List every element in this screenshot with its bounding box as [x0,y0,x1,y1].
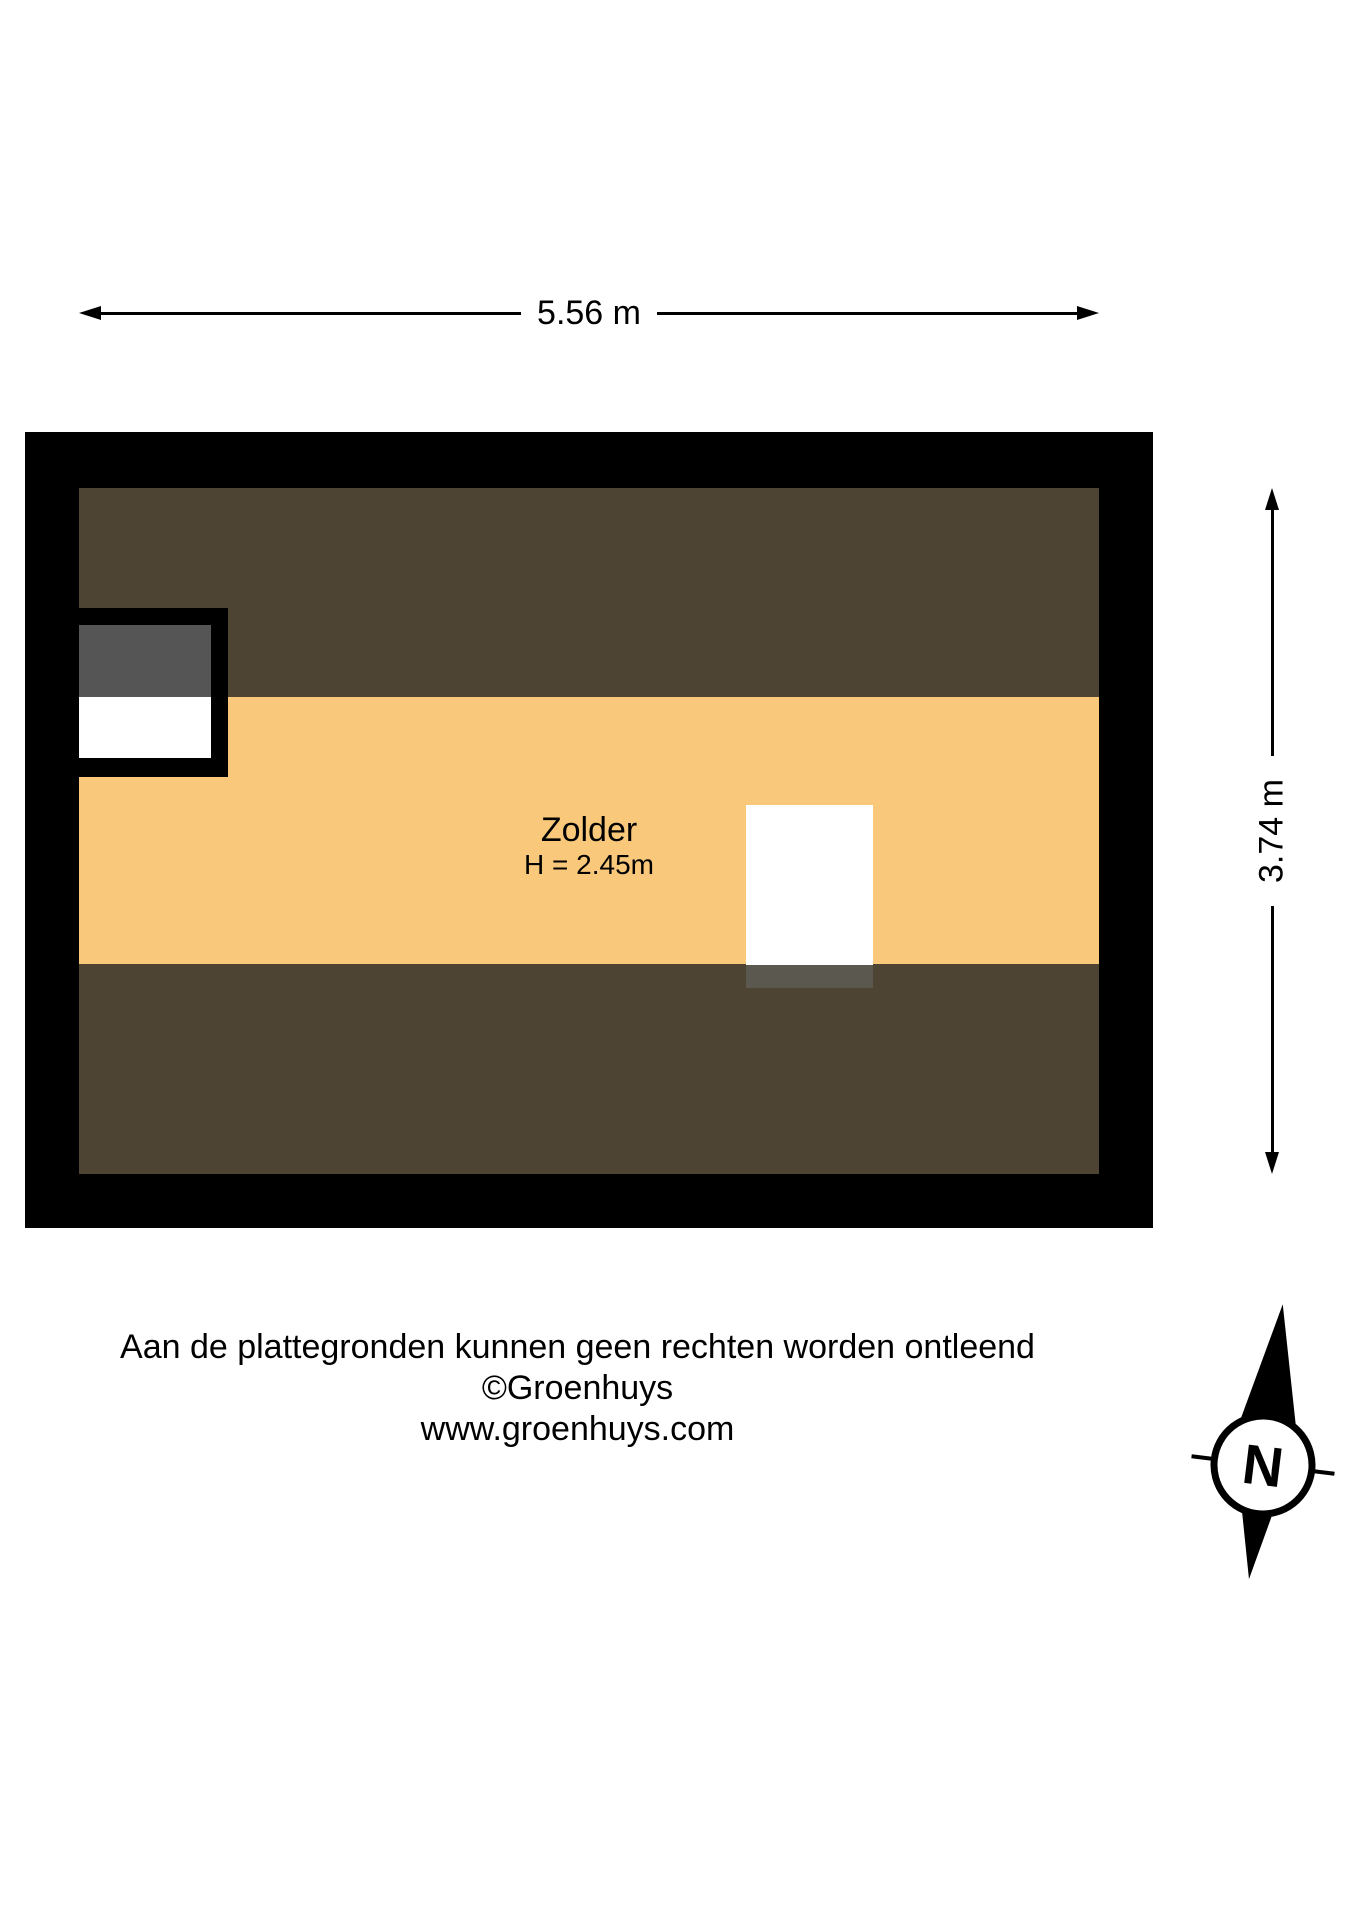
compass-north-label: N [1239,1432,1287,1499]
website-text: www.groenhuys.com [0,1409,1155,1450]
dimension-height-label: 3.74 m [1253,779,1292,883]
roof-slope-area-top [79,488,1099,697]
arrowhead-down-icon [1265,1152,1279,1174]
room-height-label: H = 2.45m [389,849,789,881]
north-arrow-icon: N [1178,1295,1355,1587]
room-interior: Zolder H = 2.45m [79,488,1099,1174]
dimension-line [1271,510,1274,756]
room-label-block: Zolder H = 2.45m [389,812,789,881]
arrowhead-right-icon [1077,306,1099,320]
compass: N [1175,1275,1355,1595]
roof-slope-area-bottom [79,964,1099,1174]
copyright-text: ©Groenhuys [0,1368,1155,1409]
floorplan-page: 5.56 m Zolder H = 2.45m 3.74 m [0,0,1358,1920]
dimension-line [101,312,521,315]
closet-shaded-area [79,625,211,697]
dimension-line [657,312,1077,315]
closet [60,608,228,777]
dimension-width: 5.56 m [79,293,1099,333]
dimension-height: 3.74 m [1252,488,1292,1174]
dimension-line [1271,906,1274,1152]
disclaimer-text: Aan de plattegronden kunnen geen rechten… [0,1327,1155,1368]
dimension-width-label: 5.56 m [521,294,657,333]
disclaimer-block: Aan de plattegronden kunnen geen rechten… [0,1327,1155,1450]
arrowhead-left-icon [79,306,101,320]
floorplan-outer-wall: Zolder H = 2.45m [25,432,1153,1228]
room-name-label: Zolder [389,812,789,849]
arrowhead-up-icon [1265,488,1279,510]
dimension-height-label-wrap: 3.74 m [1252,756,1292,906]
closet-open-area [79,697,211,758]
stair-opening-shaded-part [746,964,873,988]
